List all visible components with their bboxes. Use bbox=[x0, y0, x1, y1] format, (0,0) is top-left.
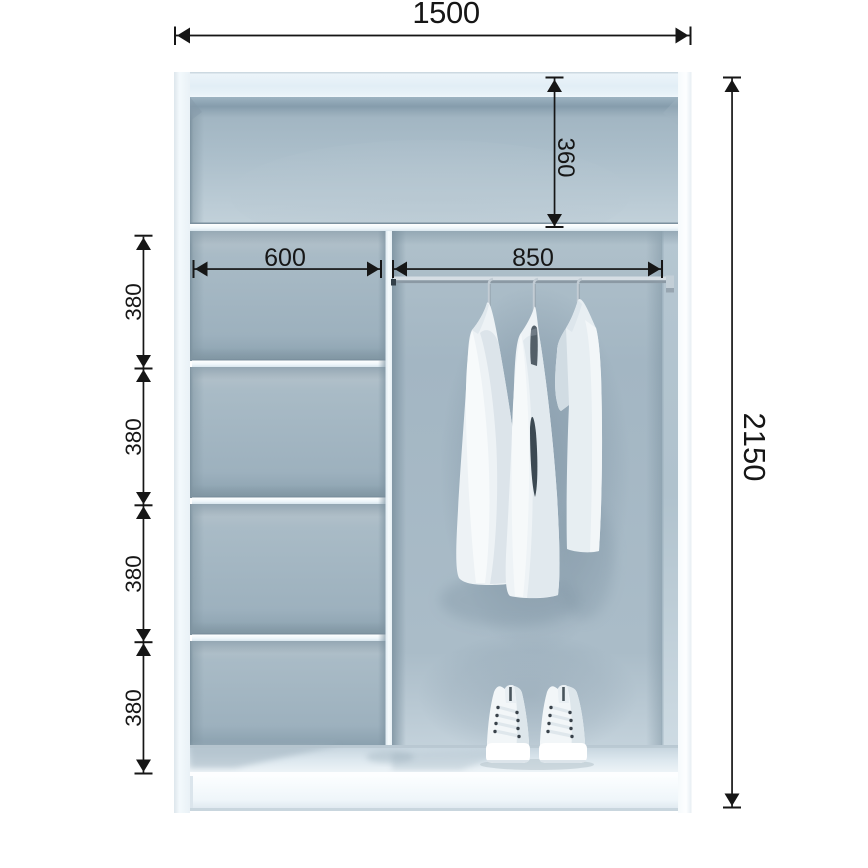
svg-text:360: 360 bbox=[552, 137, 579, 177]
svg-text:1500: 1500 bbox=[412, 0, 480, 30]
svg-text:600: 600 bbox=[264, 244, 306, 272]
svg-text:380: 380 bbox=[121, 555, 146, 593]
svg-text:2150: 2150 bbox=[737, 413, 772, 482]
svg-text:380: 380 bbox=[121, 418, 146, 456]
svg-text:850: 850 bbox=[512, 244, 554, 272]
svg-text:380: 380 bbox=[121, 689, 146, 727]
svg-text:380: 380 bbox=[121, 283, 146, 321]
